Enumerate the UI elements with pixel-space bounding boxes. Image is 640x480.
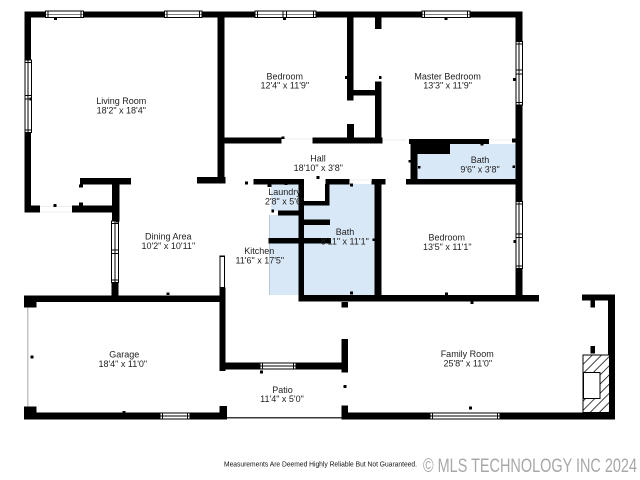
svg-text:13'3" x 11'9": 13'3" x 11'9" xyxy=(423,81,472,91)
svg-text:2'8" x 5'6": 2'8" x 5'6" xyxy=(265,197,304,207)
svg-text:9'6" x 3'8": 9'6" x 3'8" xyxy=(460,164,499,174)
svg-text:18'2" x 18'4": 18'2" x 18'4" xyxy=(97,105,146,115)
svg-text:18'10" x 3'8": 18'10" x 3'8" xyxy=(294,163,343,173)
svg-text:12'4" x 11'9": 12'4" x 11'9" xyxy=(260,81,309,91)
svg-text:13'5" x 11'1": 13'5" x 11'1" xyxy=(423,242,472,252)
svg-text:© MLS TECHNOLOGY INC 2024: © MLS TECHNOLOGY INC 2024 xyxy=(423,456,637,477)
svg-text:8'11" x 11'1": 8'11" x 11'1" xyxy=(321,237,369,247)
svg-text:Measurements Are Deemed Highly: Measurements Are Deemed Highly Reliable … xyxy=(224,461,417,468)
svg-text:18'4" x 11'0": 18'4" x 11'0" xyxy=(98,359,147,369)
svg-text:11'4" x 5'0": 11'4" x 5'0" xyxy=(260,394,304,404)
svg-text:10'2" x 10'11": 10'2" x 10'11" xyxy=(141,241,195,251)
svg-text:11'6" x 17'5": 11'6" x 17'5" xyxy=(235,255,284,265)
svg-text:25'8" x 11'0": 25'8" x 11'0" xyxy=(443,358,492,368)
